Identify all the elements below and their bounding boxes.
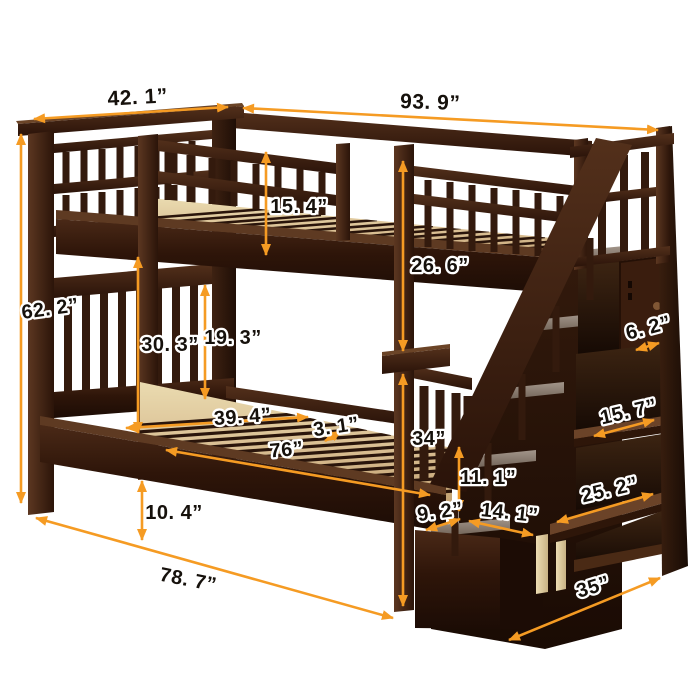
dim-label-frame-to-floor: 34” (412, 428, 446, 450)
dim-label-underbed-clearance: 10. 4” (145, 502, 202, 524)
dim-label-upper-bunk-depth: 26. 6” (411, 255, 468, 277)
dim-label-headboard-width: 42. 1” (107, 84, 168, 110)
dim-label-guardrail-height: 15. 4” (270, 196, 327, 218)
dim-label-lower-headboard-height: 19. 3” (204, 327, 261, 349)
dim-label-bunk-clearance: 30. 3” (141, 334, 198, 356)
dim-label-slat-span-width: 39. 4” (213, 404, 272, 430)
dim-label-overall-length-top: 93. 9” (400, 90, 461, 115)
dim-label-base-length: 78. 7” (158, 564, 219, 597)
product-dimension-diagram: 42. 1” 93. 9” 15. 4” 26. 6” 62. 2” 30. 3… (0, 0, 700, 700)
dim-label-sleeping-length: 76” (269, 438, 305, 463)
bunk-bed-illustration (16, 103, 688, 649)
dim-label-step-rise: 11. 1” (460, 467, 516, 489)
arrow-base-length (36, 518, 393, 618)
bunk-bed-diagram-canvas: 42. 1” 93. 9” 15. 4” 26. 6” 62. 2” 30. 3… (0, 0, 700, 700)
